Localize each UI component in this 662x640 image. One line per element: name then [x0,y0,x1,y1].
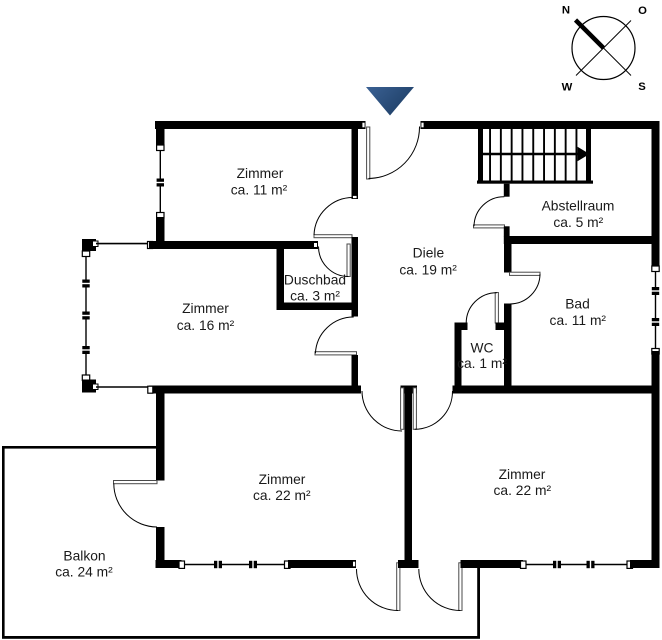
svg-text:Zimmer: Zimmer [237,166,284,181]
svg-text:Duschbad: Duschbad [284,273,346,288]
svg-text:Zimmer: Zimmer [259,472,306,487]
svg-text:ca. 19 m²: ca. 19 m² [399,263,457,278]
svg-text:Zimmer: Zimmer [182,301,229,316]
svg-text:ca. 16 m²: ca. 16 m² [177,318,235,333]
svg-text:ca. 3 m²: ca. 3 m² [290,289,340,304]
svg-text:ca. 1 m²: ca. 1 m² [457,356,507,371]
svg-text:W: W [562,81,573,93]
svg-text:Balkon: Balkon [63,549,105,564]
svg-text:ca. 11 m²: ca. 11 m² [231,183,288,198]
svg-text:O: O [638,5,647,17]
svg-text:ca. 22 m²: ca. 22 m² [253,488,311,503]
svg-text:ca. 11 m²: ca. 11 m² [550,313,607,328]
svg-text:ca. 24 m²: ca. 24 m² [55,565,113,580]
svg-text:Abstellraum: Abstellraum [542,198,615,213]
svg-text:WC: WC [471,340,494,355]
svg-text:Bad: Bad [565,297,590,312]
svg-text:N: N [562,5,570,17]
svg-text:ca. 22 m²: ca. 22 m² [494,483,552,498]
svg-text:Diele: Diele [413,246,445,261]
svg-text:ca. 5 m²: ca. 5 m² [553,215,603,230]
svg-text:Zimmer: Zimmer [499,467,546,482]
svg-text:S: S [638,81,646,93]
